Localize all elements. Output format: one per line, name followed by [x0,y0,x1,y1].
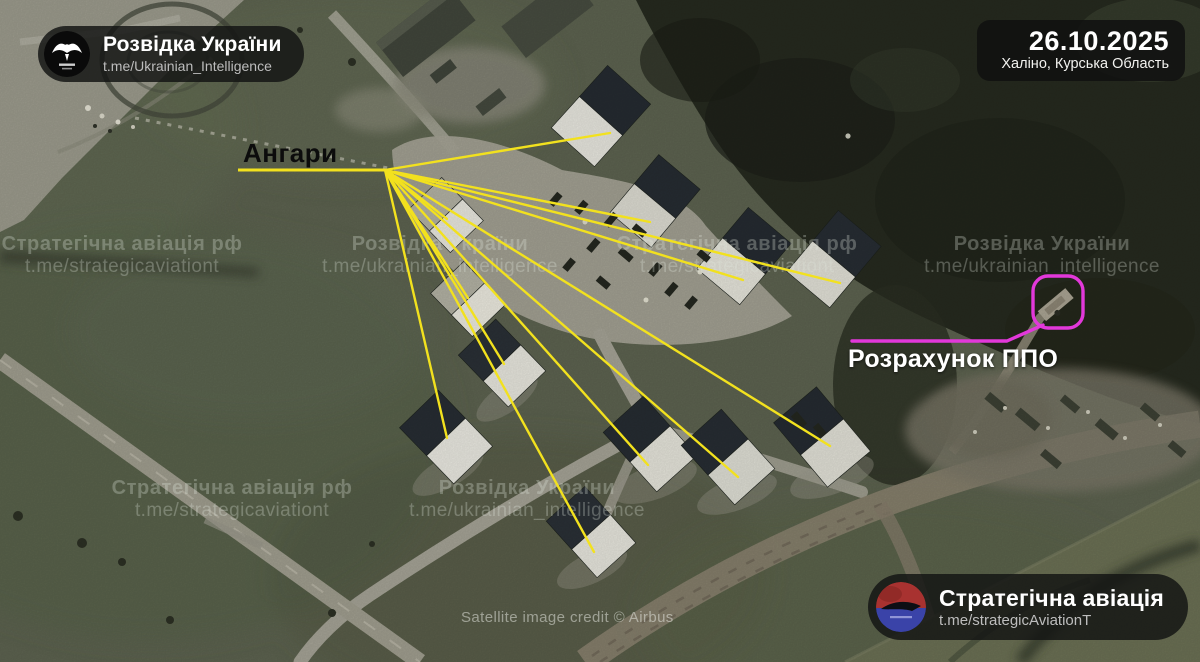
air-defense-highlight-box [1033,276,1083,328]
aviation-channel-title: Стратегічна авіація [939,585,1164,612]
image-credit: Satellite image credit © Airbus [461,609,674,626]
hangar-pointer-line [385,170,830,446]
satellite-image-root: Стратегічна авіація рфt.me/strategicavia… [0,0,1200,662]
hangar-pointer-line [385,170,504,364]
capture-date: 26.10.2025 [1001,27,1169,55]
intel-channel-handle: t.me/Ukrainian_Intelligence [103,58,282,75]
hangars-label: Ангари [243,138,338,169]
date-location-badge: 26.10.2025 Халіно, Курська Область [977,20,1185,81]
hangar-pointer-line [385,170,840,283]
intel-channel-title: Розвідка України [103,33,282,58]
hangar-pointer-line [385,170,594,552]
intel-owl-logo-icon [44,31,90,77]
annotation-lines-svg [0,0,1200,662]
air-defense-label: Розрахунок ППО [848,345,1058,374]
air-defense-pointer-line [852,325,1043,341]
hangar-pointer-line [385,170,743,280]
aviation-channel-handle: t.me/strategicAviationT [939,612,1164,630]
hangar-pointer-line [385,170,738,477]
aviation-logo-icon [876,582,926,632]
aviation-channel-badge: Стратегічна авіація t.me/strategicAviati… [868,574,1188,640]
capture-location: Халіно, Курська Область [1001,56,1169,72]
hangar-pointer-line [385,133,610,170]
intel-channel-badge: Розвідка України t.me/Ukrainian_Intellig… [38,26,304,82]
